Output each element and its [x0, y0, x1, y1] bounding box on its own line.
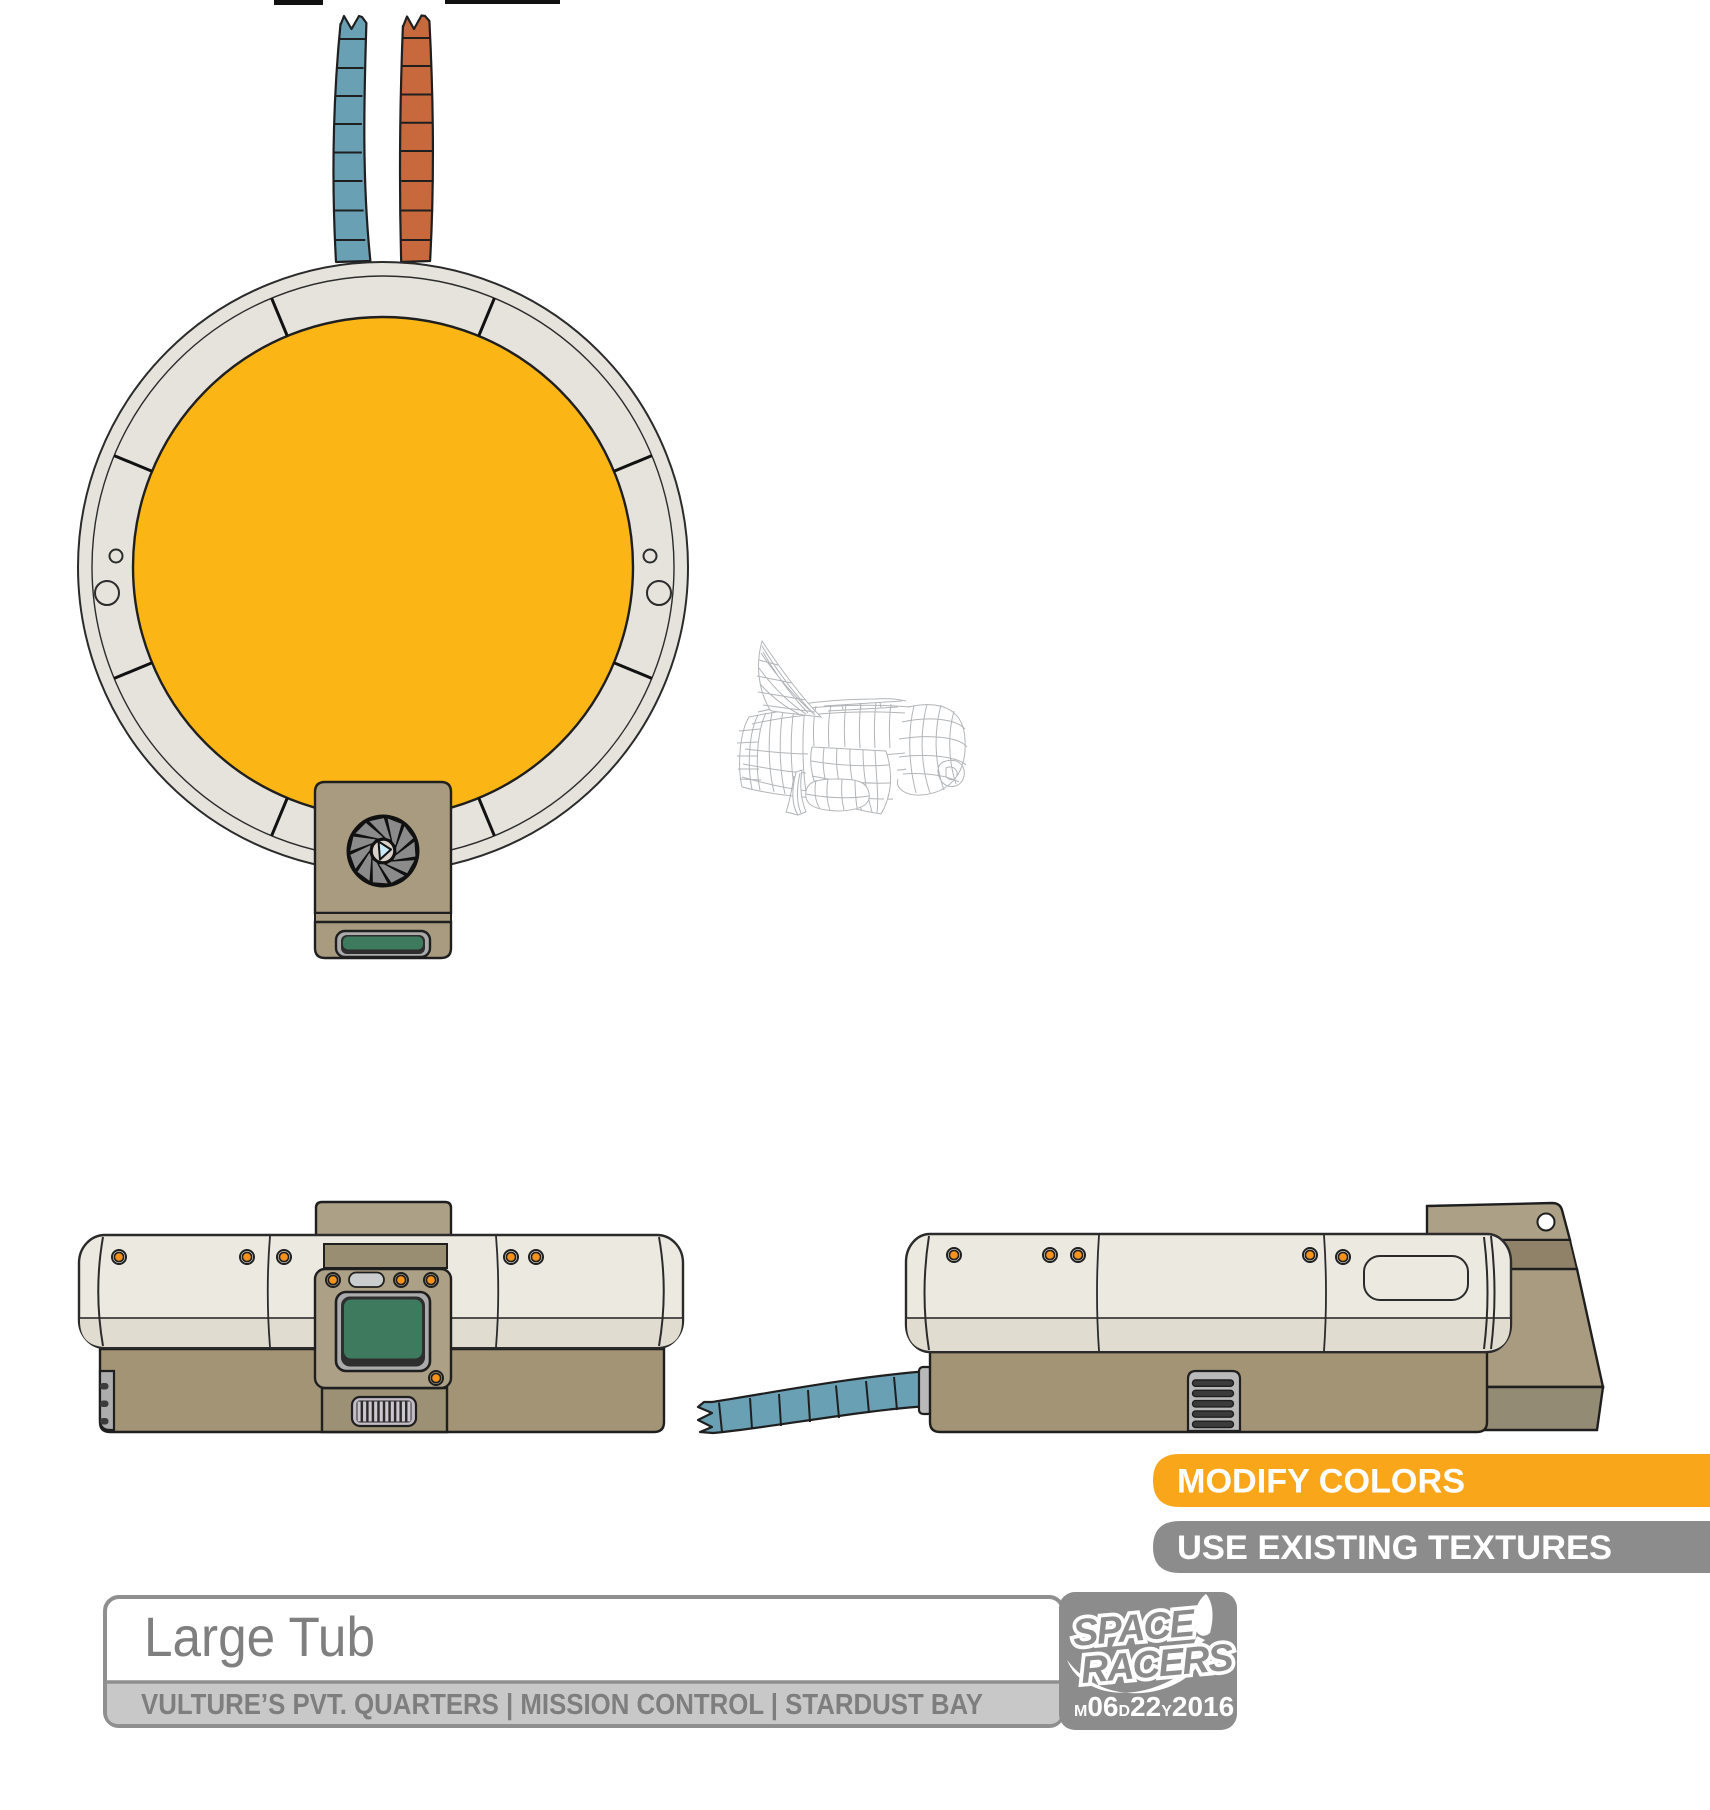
svg-text:MODIFY COLORS: MODIFY COLORS	[1177, 1463, 1465, 1501]
svg-text:M06D22Y2016: M06D22Y2016	[1074, 1691, 1234, 1722]
svg-text:Large Tub: Large Tub	[144, 1605, 375, 1668]
svg-text:USE EXISTING TEXTURES: USE EXISTING TEXTURES	[1177, 1529, 1612, 1567]
svg-text:VULTURE’S PVT. QUARTERS | MISS: VULTURE’S PVT. QUARTERS | MISSION CONTRO…	[141, 1689, 983, 1721]
